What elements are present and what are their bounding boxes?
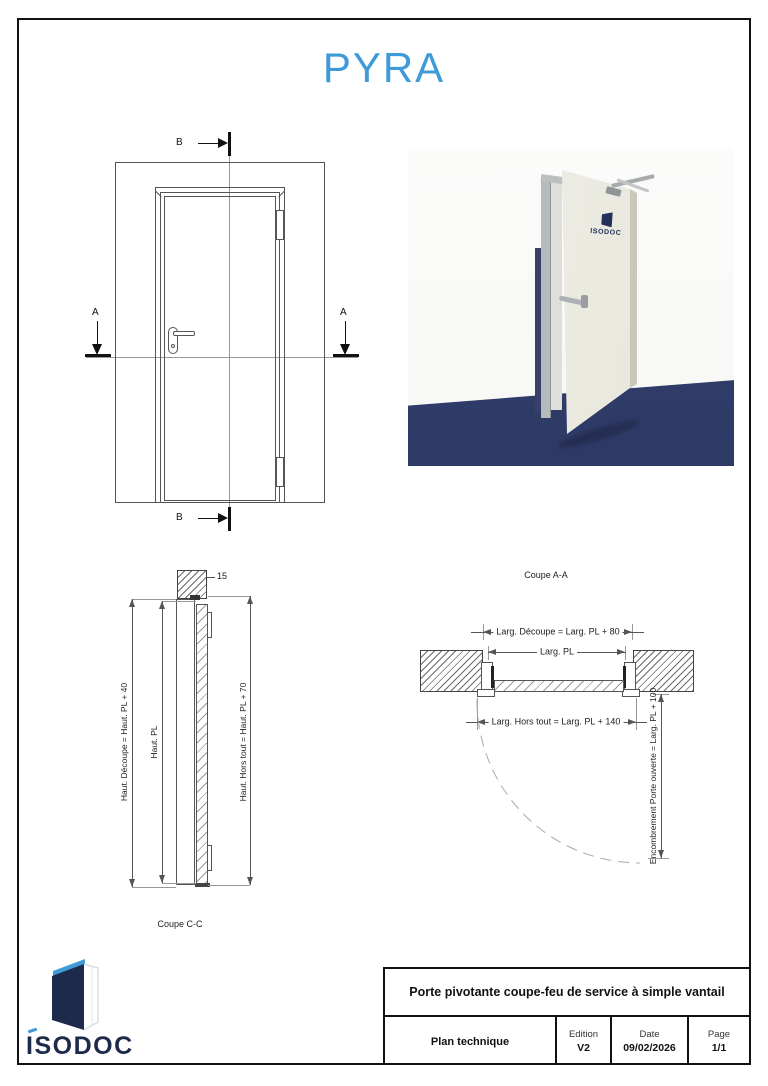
hinge-bottom [276,457,284,487]
render-door-handle-base [581,295,588,308]
aa-dim-enc-arrow-bot [658,850,664,858]
cc-dim-horstout-label: Haut. Hors tout = Haut. PL + 70 [238,683,248,802]
company-logo-text: ISODOC [26,1032,134,1061]
technical-drawing-page: PYRA B B A [0,0,768,1086]
section-marker-a-right: A [340,307,347,318]
b-top-tick [228,132,231,156]
cc-dim-pl-arrow-top [159,601,165,609]
edition-value: V2 [577,1042,590,1054]
cc-ext-bot-2 [162,883,196,884]
a-left-line [97,321,98,346]
cc-dim-pl-label: Haut. PL [149,725,159,758]
b-bottom-tick [228,507,231,531]
aa-dim-decoupe-label: Larg. Découpe = Larg. PL + 80 [493,627,622,637]
cc-dim15-label: 15 [217,571,227,581]
aa-dim-pl-arrow-r [617,649,625,655]
coupe-cc-caption: Coupe C-C [150,919,210,929]
aa-dim-enc-label: Encombrement Porte ouverte = Larg. PL + … [648,688,658,864]
edition-label: Edition [569,1029,598,1040]
a-right-line [345,321,346,346]
page-title: PYRA [0,44,768,92]
render-door-logo: ISODOC [583,211,629,248]
title-block: Porte pivotante coupe-feu de service à s… [383,967,751,1065]
doc-type-value: Plan technique [431,1036,509,1048]
handle-keyhole [171,344,175,348]
cc-dim-decoupe-arrow-top [129,599,135,607]
cc-frame-strip [176,599,195,885]
cc-dim-horstout-arrow-bot [247,877,253,885]
render-frame-jamb [541,176,551,418]
hinge-top [276,210,284,240]
title-block-product-title: Porte pivotante coupe-feu de service à s… [385,969,749,1017]
page-label: Page [708,1029,730,1040]
cc-dim-decoupe-line [132,599,133,887]
cc-hinge-bottom [207,845,212,871]
date-value: 09/02/2026 [623,1042,676,1054]
a-right-bar [333,354,359,357]
aa-dim-decoupe-arrow-r [624,629,632,635]
section-marker-b-bottom: B [176,512,183,523]
cc-hinge-top [207,612,212,638]
door-swing-arc [468,690,653,870]
b-bottom-arrow-line [198,518,220,519]
aa-dim-enc-arrow-top [658,694,664,702]
render-door-logo-icon [601,212,613,228]
date-label: Date [639,1029,659,1040]
cc-ext-bot-3 [208,885,250,886]
section-marker-b-top: B [176,137,183,148]
cc-dim-decoupe-label: Haut. Découpe = Haut. PL + 40 [119,683,129,801]
cc-dim-decoupe-arrow-bot [129,879,135,887]
b-top-arrow-line [198,143,220,144]
cc-dim-pl-line [162,601,163,883]
handle-lever [173,331,195,336]
title-block-edition-cell: Edition V2 [557,1017,612,1065]
cc-top-seal [190,595,200,600]
aa-dim-decoupe-arrow-l [483,629,491,635]
cc-dim15-leader [207,577,215,578]
aa-wall-left [420,650,483,692]
aa-dim-pl-arrow-l [488,649,496,655]
page-value: 1/1 [712,1042,727,1054]
section-marker-a-left: A [92,307,99,318]
coupe-aa-caption: Coupe A-A [515,570,577,580]
cc-dim-horstout-arrow-top [247,596,253,604]
cc-ext-top-3 [208,596,250,597]
cc-dim-pl-arrow-bot [159,875,165,883]
aa-dim-enc-line [661,694,662,858]
aa-wall-right [633,650,694,692]
render-door-logo-text: ISODOC [584,227,628,237]
product-render: ISODOC [408,148,734,466]
cc-dim-horstout-line [250,596,251,885]
b-bottom-arrowhead [218,513,228,523]
company-logo-icon [52,958,104,1032]
cc-ext-top-2 [162,601,196,602]
cc-ext-top-1 [132,599,176,600]
b-top-arrowhead [218,138,228,148]
title-block-date-cell: Date 09/02/2026 [612,1017,689,1065]
door-leaf [164,196,276,501]
cc-leaf-section [196,604,208,884]
aa-dim-pl-label: Larg. PL [537,647,577,657]
title-block-page-cell: Page 1/1 [689,1017,749,1065]
title-block-row: Plan technique Edition V2 Date 09/02/202… [385,1017,749,1065]
title-block-doc-type-cell: Plan technique [385,1017,557,1065]
aa-ext-pl-right [625,646,626,660]
cc-ext-bot-1 [132,887,176,888]
a-left-bar [85,354,111,357]
